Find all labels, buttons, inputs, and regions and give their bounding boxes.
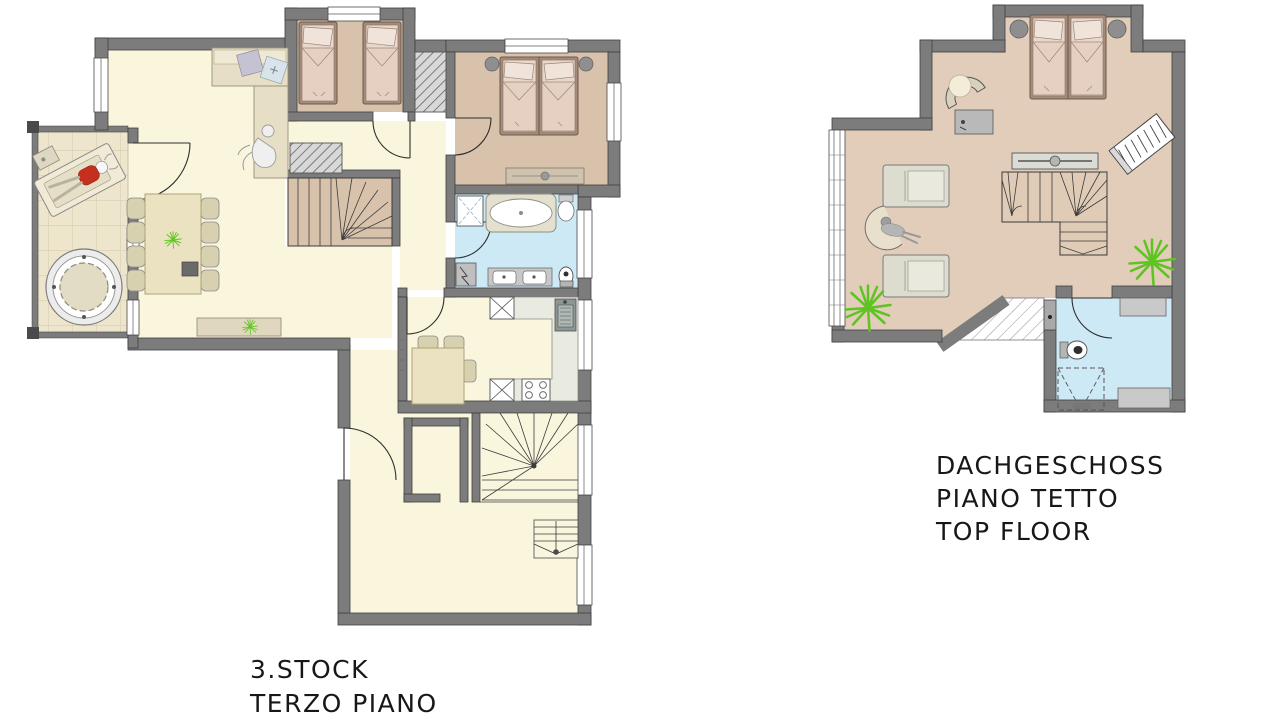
window xyxy=(577,545,592,605)
double-bed xyxy=(500,57,578,135)
living-room-floor xyxy=(285,246,392,338)
relax-lounger xyxy=(883,255,949,297)
stair-railing xyxy=(1012,153,1098,169)
side-desk xyxy=(955,110,993,134)
window xyxy=(328,7,380,21)
third-floor-label-line1: 3.STOCK xyxy=(250,655,369,684)
top-floor-label-line2: PIANO TETTO xyxy=(936,484,1119,513)
appliance xyxy=(490,379,514,401)
built-in-wardrobe xyxy=(415,52,446,112)
floor-plan-drawing: 3.STOCK TERZO PIANO DACHGESCHOSS PIANO T… xyxy=(0,0,1280,720)
bidet xyxy=(558,195,574,221)
balcony xyxy=(27,121,128,339)
floor-plan-sheet: 3.STOCK TERZO PIANO DACHGESCHOSS PIANO T… xyxy=(0,0,1280,720)
bathtub xyxy=(486,194,556,232)
top-floor-label-line3: TOP FLOOR xyxy=(935,517,1092,546)
corridor-floor xyxy=(400,178,446,290)
window xyxy=(577,425,592,495)
window xyxy=(127,300,139,335)
window xyxy=(577,210,592,278)
dresser xyxy=(506,168,584,184)
bedside-stool xyxy=(485,57,499,71)
shower xyxy=(457,196,483,226)
bedside-stool xyxy=(1108,20,1126,38)
tv-unit xyxy=(182,262,198,276)
bathroom-shelf xyxy=(1120,298,1166,316)
appliance xyxy=(490,297,514,319)
third-floor-label-line2: TERZO PIANO xyxy=(249,689,438,718)
floor-plan-top-floor xyxy=(829,5,1185,412)
kitchen-sink xyxy=(555,299,576,331)
eaves-door xyxy=(1044,300,1056,330)
washing-machine xyxy=(456,263,476,286)
toilet xyxy=(559,267,573,287)
toilet xyxy=(1060,341,1087,359)
double-sink-vanity xyxy=(488,268,552,286)
window-front xyxy=(829,130,845,326)
window xyxy=(577,300,592,370)
window xyxy=(94,58,108,112)
single-bed xyxy=(299,22,337,104)
window xyxy=(607,83,621,141)
vestibule-floor xyxy=(350,350,398,613)
floor-plan-third-floor xyxy=(27,7,621,625)
single-bed xyxy=(363,22,401,104)
staircase-to-top-floor xyxy=(288,178,392,246)
stair-flight-down xyxy=(534,520,578,558)
top-floor-label-line1: DACHGESCHOSS xyxy=(936,451,1164,480)
hall-wardrobe xyxy=(290,143,342,173)
kitchen-table xyxy=(412,348,464,404)
bedside-stool xyxy=(1010,20,1028,38)
bathroom-shelf xyxy=(1118,388,1170,408)
relax-lounger xyxy=(883,165,949,207)
window xyxy=(505,39,568,53)
bedside-stool xyxy=(579,57,593,71)
stove xyxy=(522,379,550,401)
sideboard xyxy=(197,318,281,336)
hot-tub xyxy=(46,249,122,325)
